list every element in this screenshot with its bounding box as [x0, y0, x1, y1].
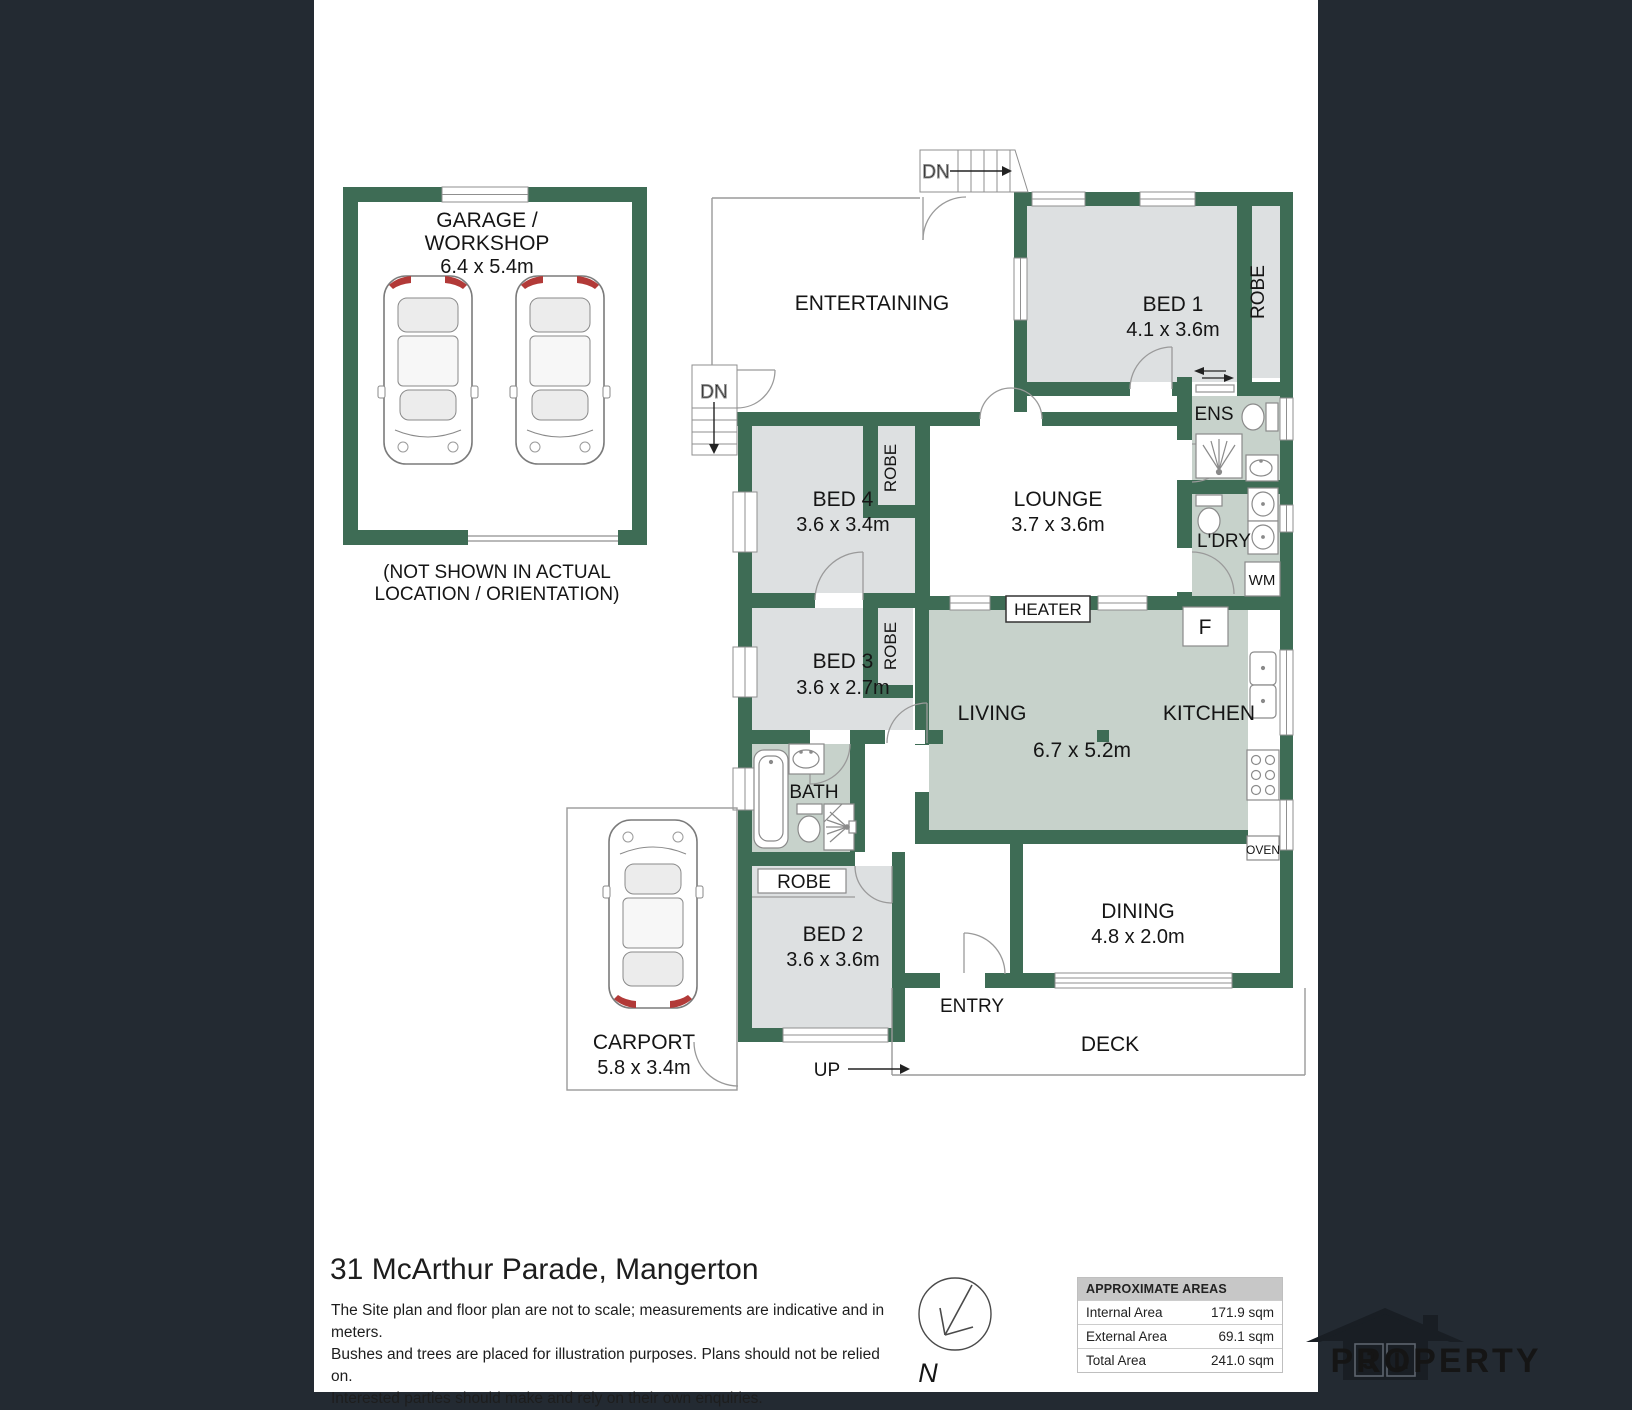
room-bed1: [1027, 206, 1237, 382]
label-fridge: F: [1199, 616, 1212, 639]
disclaimer-line: The Site plan and floor plan are not to …: [331, 1300, 891, 1344]
garage-dims: 6.4 x 5.4m: [440, 256, 533, 278]
area-value: 69.1 sqm: [1218, 1329, 1274, 1344]
label-deck: DECK: [1081, 1033, 1139, 1056]
label-bed3: BED 3: [813, 650, 874, 673]
window: [1032, 192, 1085, 206]
kitchen-bench: [1248, 610, 1280, 858]
door: [923, 197, 966, 240]
label-bath: BATH: [789, 782, 838, 803]
table-row: External Area 69.1 sqm: [1078, 1324, 1282, 1348]
north-arrow-icon: [940, 1285, 973, 1335]
dims-dining: 4.8 x 2.0m: [1091, 926, 1184, 948]
dims-bed3: 3.6 x 2.7m: [796, 677, 889, 699]
door: [737, 370, 775, 408]
stairs-down-label: DN: [922, 162, 949, 183]
brand-logo: J L PROPERTY: [1300, 1300, 1632, 1388]
table-row: Total Area 241.0 sqm: [1078, 1348, 1282, 1372]
label-bed4: BED 4: [813, 488, 874, 511]
shower-icon: [1196, 434, 1242, 478]
label-entry: ENTRY: [940, 996, 1004, 1017]
label-wm: WM: [1249, 572, 1276, 589]
dims-lounge: 3.7 x 3.6m: [1011, 514, 1104, 536]
window: [733, 647, 757, 697]
dims-bed4: 3.6 x 3.4m: [796, 514, 889, 536]
stairs-down-label: DN: [700, 382, 727, 403]
car-icon: [510, 276, 610, 464]
label-oven: OVEN: [1246, 843, 1280, 857]
shower-icon: [824, 804, 856, 850]
window: [1280, 650, 1293, 735]
floor-plan: GARAGE / WORKSHOP 6.4 x 5.4m (NOT SHOWN …: [0, 0, 1632, 1392]
area-label: External Area: [1086, 1329, 1167, 1344]
compass-n-label: N: [918, 1358, 938, 1388]
label-robe-bed2: ROBE: [777, 872, 831, 893]
label-kitchen: KITCHEN: [1163, 702, 1255, 725]
up-steps: [848, 1064, 910, 1074]
window: [1014, 258, 1027, 320]
dims-living: 6.7 x 5.2m: [1033, 739, 1131, 762]
disclaimer-line: Bushes and trees are placed for illustra…: [331, 1344, 891, 1388]
car-icon: [603, 820, 703, 1008]
stove-icon: [1247, 750, 1279, 800]
north-compass: N: [914, 1274, 1006, 1392]
stairs-top: DN: [920, 150, 1028, 192]
area-value: 241.0 sqm: [1211, 1353, 1274, 1368]
garage-block: GARAGE / WORKSHOP 6.4 x 5.4m (NOT SHOWN …: [343, 187, 647, 605]
window: [950, 596, 990, 610]
bathtub-icon: [754, 750, 788, 848]
area-value: 171.9 sqm: [1211, 1305, 1274, 1320]
label-entertaining: ENTERTAINING: [795, 292, 949, 315]
dims-bed2: 3.6 x 3.6m: [786, 949, 879, 971]
window: [1280, 505, 1293, 532]
stairs-left: DN: [692, 365, 737, 455]
label-living: LIVING: [958, 702, 1027, 725]
window: [1140, 192, 1195, 206]
garage-label-2: WORKSHOP: [425, 232, 550, 255]
toilet-icon: [797, 804, 822, 842]
label-ens: ENS: [1194, 404, 1233, 425]
window: [1280, 398, 1293, 440]
dims-carport: 5.8 x 3.4m: [597, 1057, 690, 1079]
door: [694, 1042, 738, 1086]
sink-icon: [789, 744, 824, 774]
window: [1098, 596, 1147, 610]
label-bed2: BED 2: [803, 923, 864, 946]
garage-label-1: GARAGE /: [436, 209, 538, 232]
car-icon: [378, 276, 478, 464]
garage-door-opening: [468, 530, 618, 545]
areas-table: APPROXIMATE AREAS Internal Area 171.9 sq…: [1077, 1277, 1283, 1373]
label-robe-bed3: ROBE: [881, 622, 900, 670]
compass-circle: [919, 1278, 991, 1350]
label-lounge: LOUNGE: [1014, 488, 1103, 511]
label-robe-bed1: ROBE: [1248, 265, 1269, 319]
window: [733, 492, 757, 552]
window: [783, 1028, 888, 1042]
garage-window: [442, 187, 528, 202]
disclaimer-line: Interested parties should make and rely …: [331, 1388, 891, 1410]
label-up: UP: [814, 1060, 840, 1081]
toilet-icon: [1196, 495, 1222, 534]
toilet-icon: [1242, 403, 1278, 431]
garage-note-1: (NOT SHOWN IN ACTUAL: [383, 562, 611, 583]
label-heater: HEATER: [1014, 600, 1082, 619]
label-carport: CARPORT: [593, 1031, 695, 1054]
table-row: Internal Area 171.9 sqm: [1078, 1300, 1282, 1324]
disclaimer: The Site plan and floor plan are not to …: [331, 1300, 891, 1410]
area-label: Total Area: [1086, 1353, 1146, 1368]
label-laundry: L'DRY: [1197, 531, 1251, 552]
brand-name: PROPERTY: [1330, 1342, 1541, 1380]
areas-table-header: APPROXIMATE AREAS: [1078, 1278, 1282, 1300]
tub-sink-icon: [1248, 521, 1278, 554]
area-label: Internal Area: [1086, 1305, 1163, 1320]
window: [1280, 800, 1293, 850]
window: [1055, 973, 1232, 988]
sink-icon: [1246, 455, 1278, 481]
garage-note-2: LOCATION / ORIENTATION): [375, 584, 620, 605]
page-title: 31 McArthur Parade, Mangerton: [330, 1253, 890, 1287]
dims-bed1: 4.1 x 3.6m: [1126, 319, 1219, 341]
label-dining: DINING: [1101, 900, 1175, 923]
label-bed1: BED 1: [1143, 293, 1204, 316]
label-robe-bed4: ROBE: [881, 444, 900, 492]
tub-sink-icon: [1248, 488, 1278, 521]
